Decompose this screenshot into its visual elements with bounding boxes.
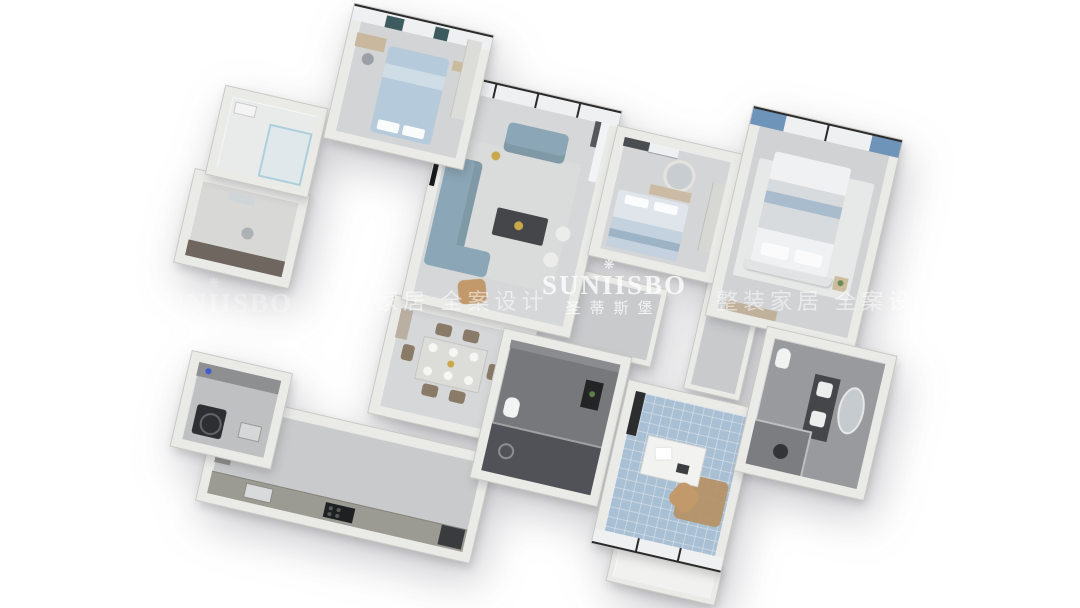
burner [336, 508, 341, 513]
pillow [793, 249, 823, 268]
laundry-counter [196, 362, 281, 395]
wardrobe [697, 182, 725, 253]
gold-tray [513, 220, 524, 231]
apartment-3d-model [0, 0, 1080, 608]
burner [335, 514, 340, 519]
toilet [502, 396, 521, 419]
paper [655, 448, 671, 460]
room-master-bedroom [706, 106, 902, 349]
window-mullion [534, 94, 539, 108]
dining-chair [462, 329, 480, 344]
shower-drain [497, 442, 516, 461]
utility-sink [237, 422, 262, 443]
storage-niche [580, 379, 604, 410]
floorplan-render: ❋ SUNIISBO 圣蒂斯堡 整装家居 全案设计 ❋ SUNIISBO 圣蒂斯… [0, 0, 1080, 608]
plate [428, 342, 439, 353]
centerpiece [447, 360, 455, 368]
wall-mirror [228, 193, 255, 207]
vanity-counter [185, 239, 285, 277]
plant [837, 280, 844, 287]
dark-curtain [623, 137, 650, 152]
desk-chair [361, 52, 375, 66]
accent-chair [457, 278, 487, 304]
sink [809, 410, 827, 428]
plant [589, 391, 596, 398]
washer-door [197, 411, 223, 437]
washing-machine [191, 404, 227, 440]
dining-chair [400, 343, 415, 361]
bed [370, 46, 450, 146]
laptop [676, 463, 690, 474]
window-mullion [576, 104, 581, 118]
dining-chair [448, 389, 466, 404]
shower-glass [258, 124, 313, 187]
bookcase [626, 391, 646, 436]
window [648, 143, 679, 159]
sideboard [395, 308, 413, 340]
plate [463, 375, 474, 386]
desk [354, 32, 386, 52]
plate [443, 370, 454, 381]
pillow [376, 119, 400, 134]
master-window [750, 106, 902, 158]
toilet [774, 347, 792, 370]
teal-curtain-panel [433, 27, 449, 42]
pillow [760, 242, 790, 261]
window-mullion [677, 548, 682, 561]
dresser [725, 300, 778, 321]
pillow [402, 125, 426, 140]
dining-chair [421, 383, 439, 398]
shower-zone [481, 421, 601, 495]
oval-mirror [833, 385, 869, 438]
plate [469, 352, 480, 363]
teal-curtain-panel [384, 15, 404, 31]
desk [639, 435, 706, 487]
pillow [624, 195, 649, 209]
sink [816, 381, 834, 399]
plate [422, 366, 433, 377]
room-master-bathroom [735, 327, 897, 500]
window-mullion [824, 125, 830, 141]
blue-curtain-panel [869, 136, 902, 158]
dining-chair [435, 322, 453, 337]
pillow [653, 201, 678, 215]
room-laundry [171, 351, 292, 468]
stool [240, 226, 254, 240]
blue-curtain-panel [750, 108, 787, 131]
window-mullion [492, 84, 497, 98]
blanket-fold [382, 63, 446, 91]
sink [233, 101, 257, 118]
burner [327, 512, 332, 517]
window-mullion [635, 538, 640, 551]
plate [448, 347, 459, 358]
burner [328, 506, 333, 511]
room-secondary-bedroom [324, 4, 493, 169]
